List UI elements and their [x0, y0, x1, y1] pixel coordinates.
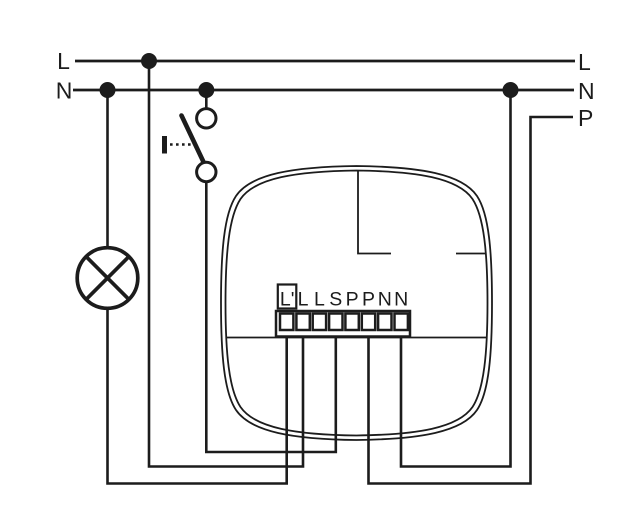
- terminal-label-n1: N: [378, 289, 392, 311]
- device-internal-contact-left: [358, 171, 391, 254]
- terminal-slot-l1: [296, 314, 309, 331]
- terminal-label-l2: L: [314, 289, 325, 311]
- junction-dot-n-right: [503, 82, 519, 98]
- terminal-block: L' L L S P P N N: [276, 285, 410, 337]
- wiring-diagram: L' L L S P P N N L N L N P: [0, 0, 644, 528]
- terminal-slot-p1: [345, 314, 358, 331]
- terminal-label-p2: P: [362, 289, 375, 311]
- terminal-slot-n1: [378, 314, 391, 331]
- terminal-slot-l2: [313, 314, 326, 331]
- n-wire: [401, 90, 511, 467]
- l-label-left: L: [57, 48, 70, 74]
- lamp-wire-bottom: [108, 308, 287, 483]
- terminal-label-s: S: [329, 289, 342, 311]
- wiring-diagram-canvas: L' L L S P P N N L N L N P: [0, 0, 644, 528]
- l-label-right: L: [578, 49, 591, 75]
- switch-contact-bottom: [197, 162, 216, 181]
- push-switch-icon: [165, 109, 217, 182]
- junction-dot-l: [141, 53, 157, 69]
- n-label-left: N: [56, 78, 73, 104]
- terminal-slot-p2: [362, 314, 375, 331]
- terminal-label-p1: P: [346, 289, 359, 311]
- p-label-right: P: [578, 105, 593, 131]
- lamp-icon: [77, 248, 138, 309]
- terminal-labels: L' L L S P P N N: [280, 289, 408, 311]
- terminal-slot-s: [329, 314, 342, 331]
- junction-dot-n-lamp: [100, 82, 116, 98]
- n-label-right: N: [578, 78, 595, 104]
- terminal-label-n2: N: [394, 289, 408, 311]
- terminal-slot-n2: [395, 314, 408, 331]
- terminal-label-lprime: L': [280, 289, 295, 311]
- terminal-label-l1: L: [298, 289, 309, 311]
- junction-dot-n-switch: [198, 82, 214, 98]
- wires: [108, 61, 574, 484]
- switch-contact-top: [197, 109, 216, 128]
- terminal-slot-lprime: [280, 314, 293, 331]
